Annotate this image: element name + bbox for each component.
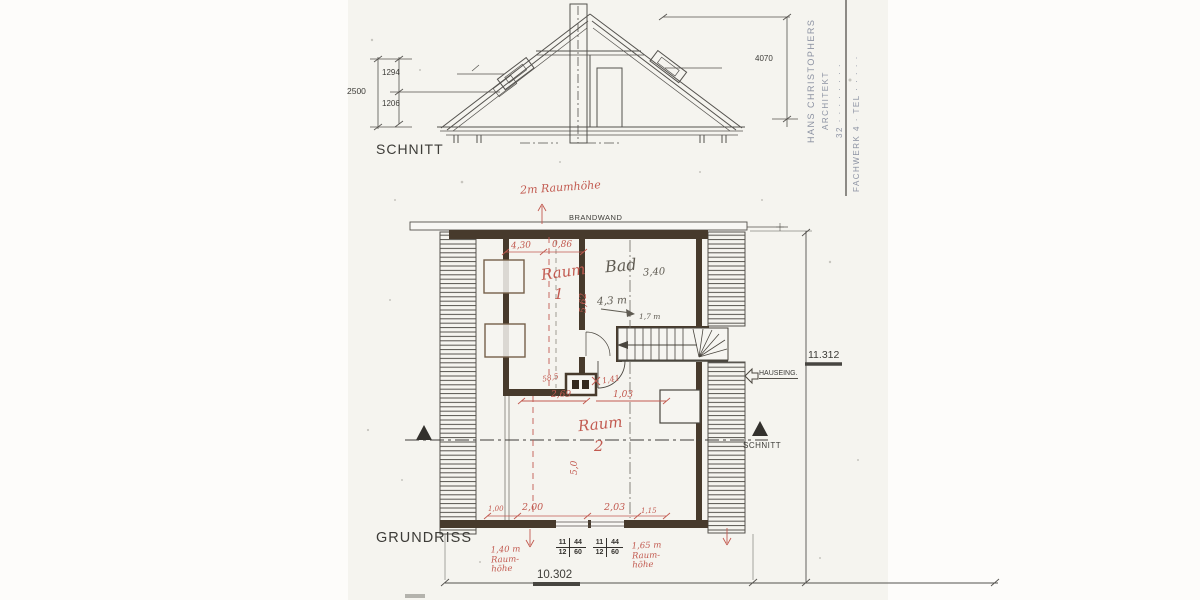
red-dim-430: 4,30 [511,240,532,251]
fraction-cell: 44 [607,538,623,547]
fraction-cell: 12 [556,547,570,557]
plan-dimension-bottom [441,534,999,586]
dim-2500: 2500 [347,86,366,96]
red-note-roomheight-left: 1,40 m Raum- höhe [491,545,522,575]
stamp-line-1: HANS CHRISTOPHERS [806,19,816,143]
pencil-dim-43m: 4,3 m [597,294,628,308]
stamp-line-4: FACHWERK 4 · TEL · · · · · [852,55,861,192]
chimney [570,4,587,143]
red-dim-203: 2,03 [604,502,625,513]
bathroom-label: Bad [604,255,637,277]
red-dim-50: 5,0 [570,461,580,475]
firewall-strip [410,222,747,230]
attic-door [597,68,622,127]
red-dim-103: 1,03 [613,390,633,400]
fraction-cell: 60 [607,547,623,557]
fraction-cell: 12 [593,547,607,557]
red-dim-562: 5,62 [579,293,589,313]
dim-11312: 11.312 [808,349,839,361]
stamp-line-2: ARCHITEKT [821,71,830,130]
knee-wall-hatch-right [708,232,745,533]
red-dim-200: 2,00 [522,502,543,513]
bathroom-dim-340: 3,40 [643,266,666,278]
room2-box [660,390,700,423]
knee-wall-hatch-left [440,232,476,534]
red-dim-086: 0,86 [552,240,572,250]
section-title: SCHNITT [376,141,444,157]
dim-4070: 4070 [755,54,773,63]
staircase [617,328,728,361]
window-fraction-left: 11441260 [556,538,586,557]
roof-window-box-lower [485,324,525,357]
dim-1294: 1294 [382,68,400,77]
attic-room [536,51,644,127]
room2-number: 2 [594,437,604,455]
skylight-right [650,51,687,83]
entrance-label: HAUSEING. [759,370,798,379]
skylight-left [497,58,534,90]
fraction-cell: 44 [570,538,586,547]
red-note-roomheight-right: 1,65 m Raum- höhe [632,541,663,571]
section-dimensions [370,14,798,130]
window-fraction-right: 11441260 [593,538,623,557]
dim-1206: 1206 [382,99,400,108]
roof-planes [441,14,742,131]
dim-10302: 10.302 [537,569,572,581]
red-arrow-down-left [526,529,534,547]
floor-plan-drawing [405,204,999,586]
roof-window-box-upper [484,260,524,293]
section-roof-drawing [437,4,745,143]
room1-number: 1 [554,285,564,303]
section-arrow-left [416,425,432,440]
red-arrow-up [538,204,546,224]
plan-dimension-right [750,229,842,586]
section-arrow-right [752,421,768,436]
section-marker-label: SCHNITT [743,441,781,450]
stamp-line-3: 32 · · · · · · · · [835,63,844,138]
pencil-dim-17m: 1,7 m [639,312,660,321]
fraction-cell: 11 [556,538,570,547]
red-dim-100: 1,00 [488,505,504,513]
fraction-cell: 60 [570,547,586,557]
entrance-arrow-icon [745,369,758,383]
red-dim-115: 1,15 [641,507,657,515]
red-dim-269: 2,69 [551,390,571,400]
firewall-label: BRANDWAND [569,213,622,222]
fraction-cell: 11 [593,538,607,547]
plan-title: GRUNDRISS [376,530,472,546]
scanned-architectural-drawing: { "section": { "title": "SCHNITT", "dim_… [0,0,1200,600]
section-base [437,127,745,143]
